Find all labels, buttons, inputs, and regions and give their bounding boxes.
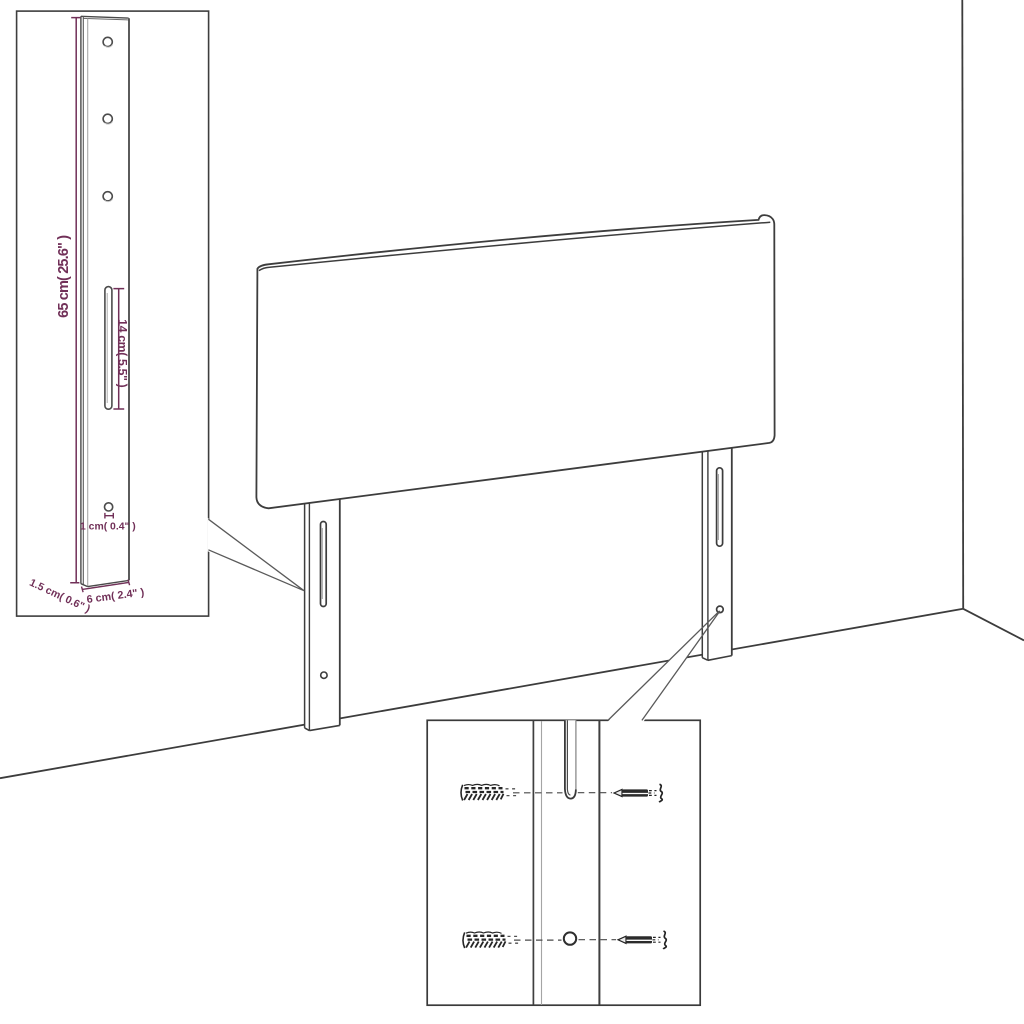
svg-text:1 cm( 0.4" ): 1 cm( 0.4" ) bbox=[80, 521, 136, 532]
svg-text:14 cm( 5.5" ): 14 cm( 5.5" ) bbox=[116, 319, 130, 388]
svg-text:65 cm( 25.6" ): 65 cm( 25.6" ) bbox=[56, 235, 72, 318]
